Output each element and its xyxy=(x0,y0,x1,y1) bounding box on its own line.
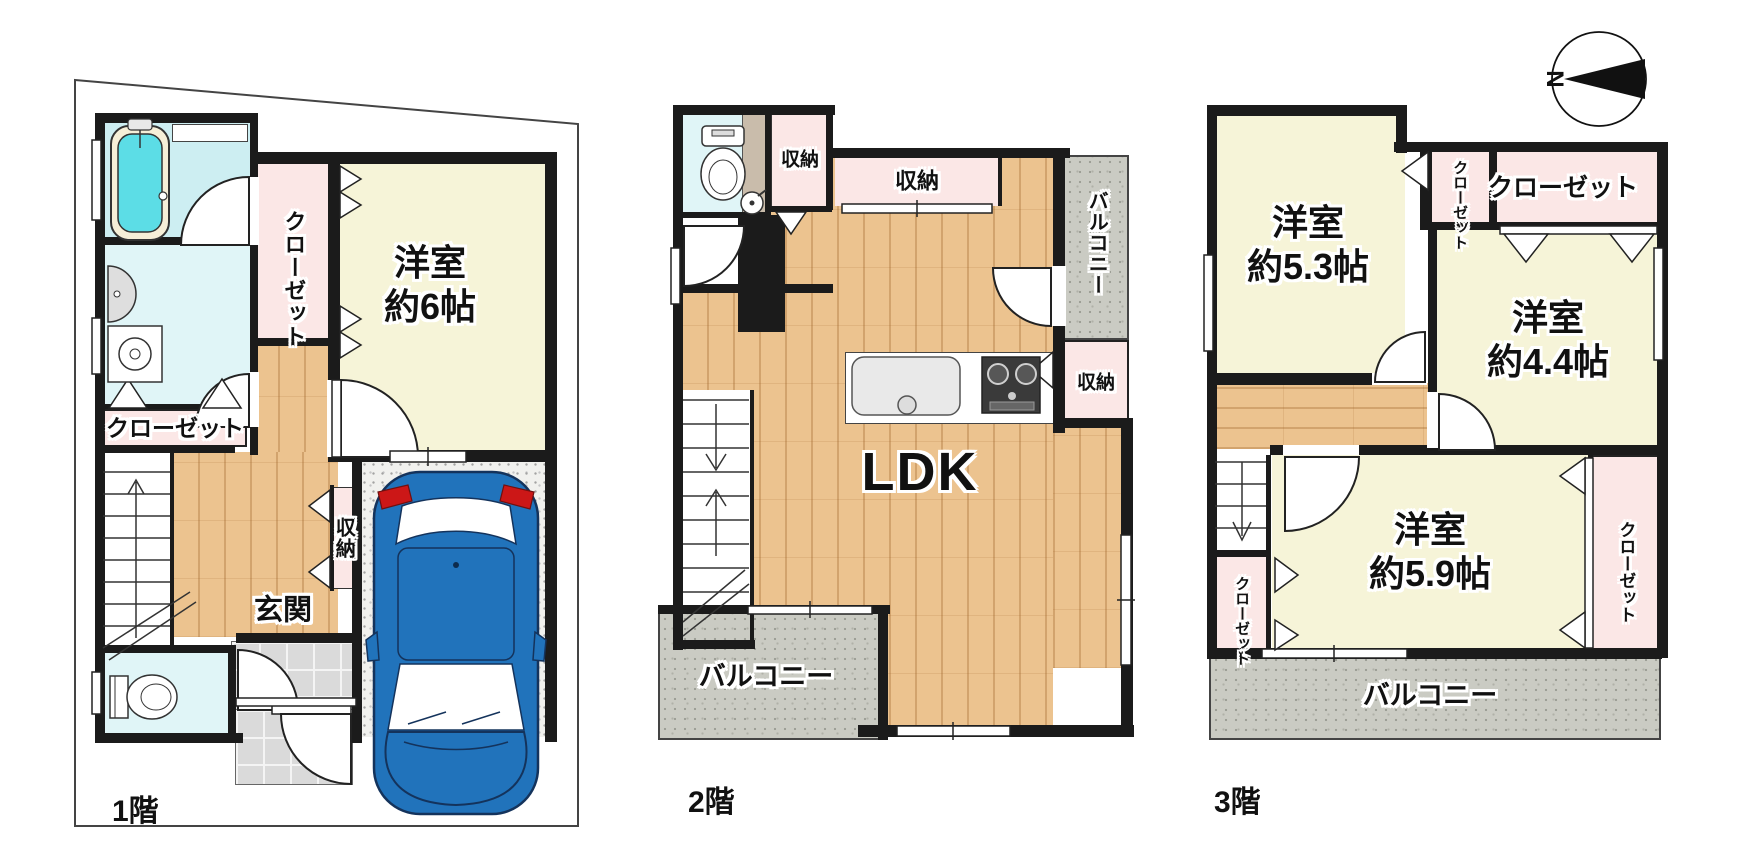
room53-size: 約5.3帖 xyxy=(1247,245,1369,289)
room59-label: 洋室 約5.9帖 xyxy=(1369,508,1491,596)
closet-b-3f-label: クローゼット xyxy=(1488,173,1638,204)
bath-counter xyxy=(172,124,248,142)
floor-2-label: 2階 xyxy=(688,777,735,821)
hallway-3f xyxy=(1213,383,1429,449)
room59-size: 約5.9帖 xyxy=(1369,552,1491,596)
room44-name: 洋室 xyxy=(1487,296,1609,340)
toilet-room-2f xyxy=(681,112,744,215)
room59-name: 洋室 xyxy=(1369,508,1491,552)
floor-1-label: 1階 xyxy=(112,786,159,830)
compass-north-label: N xyxy=(1543,70,1570,87)
closet-a-3f-label: クローゼット xyxy=(1450,160,1468,216)
toilet-room-1f xyxy=(100,650,230,735)
ldk-floor-east xyxy=(1053,428,1129,668)
staircase-1f xyxy=(100,451,172,649)
room6-label: 洋室 約6帖 xyxy=(384,241,476,329)
washroom xyxy=(100,243,250,407)
floor-plan-canvas: N クローゼット 洋室 約6帖 クローゼット 収納 玄関 1階 収納 収納 バル… xyxy=(0,0,1748,866)
entrance-porch xyxy=(235,709,353,785)
entrance-label: 玄関 xyxy=(254,593,312,628)
staircase-3f xyxy=(1213,450,1268,553)
kitchen-counter xyxy=(845,352,1055,424)
storage-side-2f-label: 収納 xyxy=(1077,371,1115,394)
storage-top-2f-label: 収納 xyxy=(895,169,939,196)
ldk-label: LDK xyxy=(862,440,979,506)
closet-c-3f-label: クローゼット xyxy=(1232,576,1250,632)
hallway-upper-1f xyxy=(252,343,336,455)
balcony-bottom-2f-label: バルコニー xyxy=(699,661,833,694)
closet-lower-label: クローゼット xyxy=(106,414,244,442)
balcony-side-label: バルコニー xyxy=(1084,191,1108,296)
entrance-hall xyxy=(231,641,355,711)
storage-1f-label: 収納 xyxy=(331,517,355,559)
floor-3-label: 3階 xyxy=(1214,777,1261,821)
room53-label: 洋室 約5.3帖 xyxy=(1247,201,1369,289)
room44-label: 洋室 約4.4帖 xyxy=(1487,296,1609,384)
room53-name: 洋室 xyxy=(1247,201,1369,245)
balcony-3f-label: バルコニー xyxy=(1363,680,1497,713)
staircase-2f xyxy=(681,390,750,640)
closet-upper-label: クローゼット xyxy=(280,210,307,294)
garage xyxy=(360,460,547,737)
pipe-space xyxy=(742,112,766,215)
room6-size: 約6帖 xyxy=(384,285,476,329)
compass-icon: N xyxy=(1543,32,1647,126)
toilet-doorway xyxy=(681,218,765,286)
closet-d-3f-label: クローゼット xyxy=(1615,521,1636,583)
storage-small-2f-label: 収納 xyxy=(781,148,819,171)
room6-name: 洋室 xyxy=(384,241,476,285)
room44-size: 約4.4帖 xyxy=(1487,340,1609,384)
